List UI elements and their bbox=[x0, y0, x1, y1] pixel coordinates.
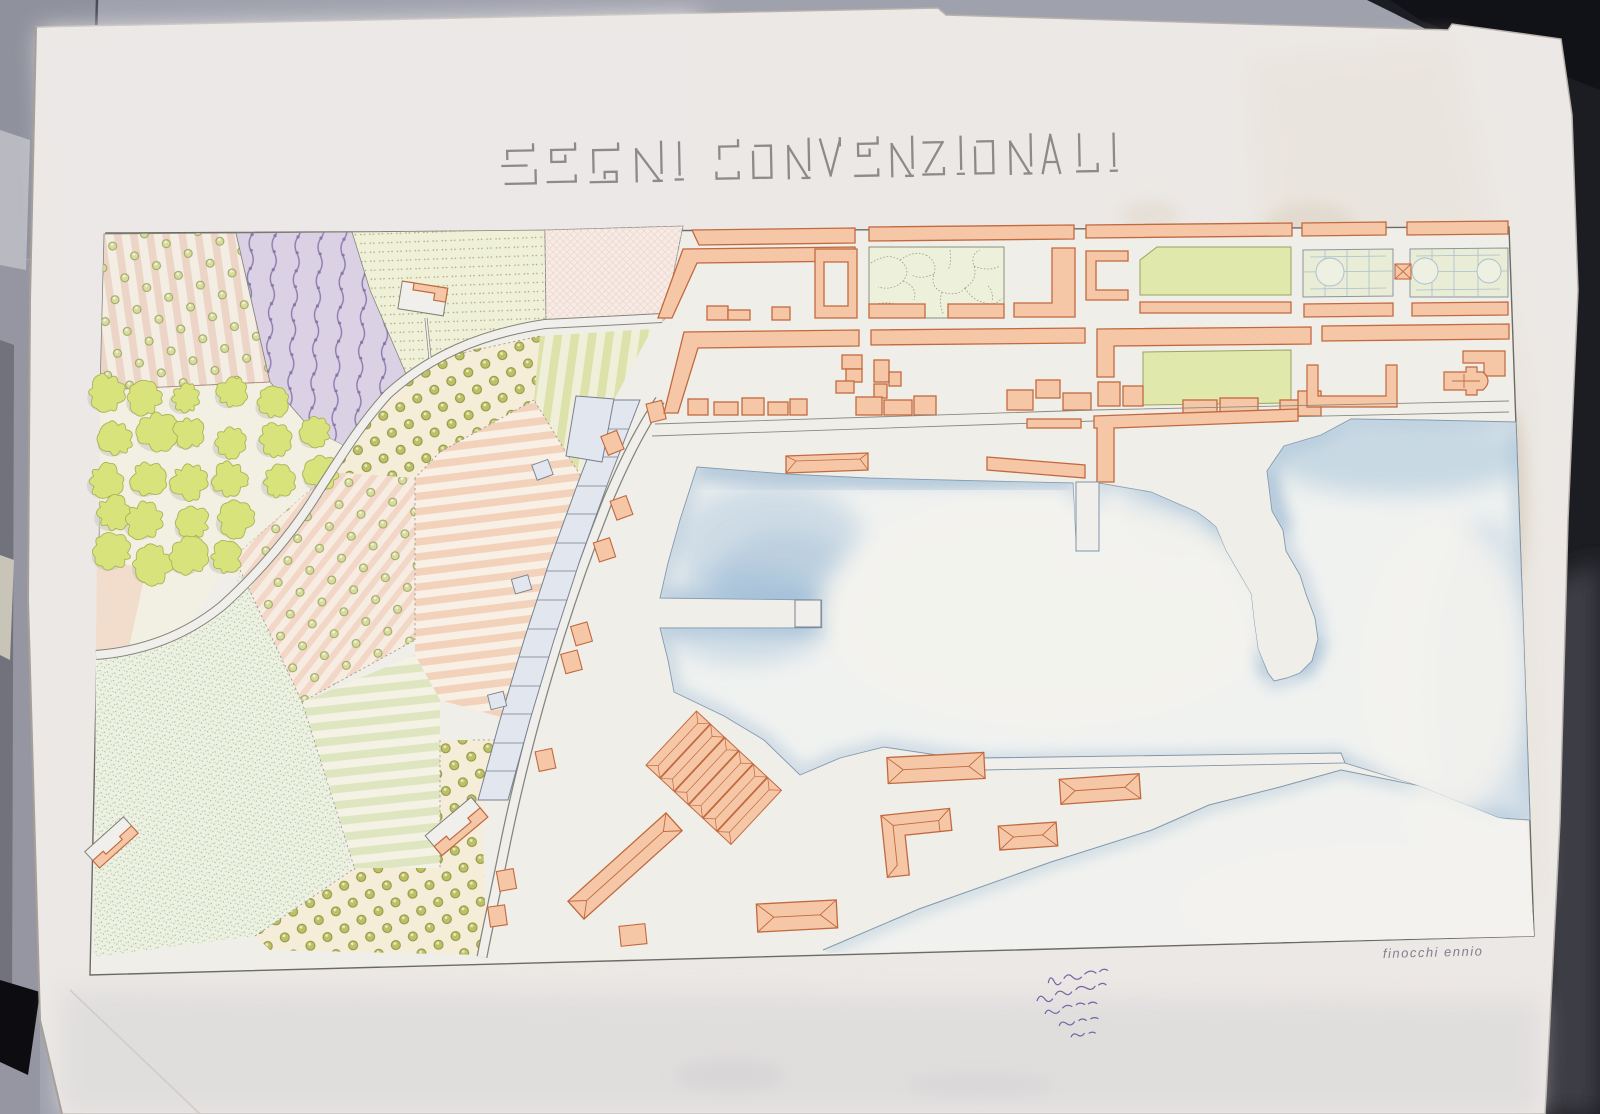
svg-text:finocchi ennio: finocchi ennio bbox=[1383, 943, 1484, 961]
